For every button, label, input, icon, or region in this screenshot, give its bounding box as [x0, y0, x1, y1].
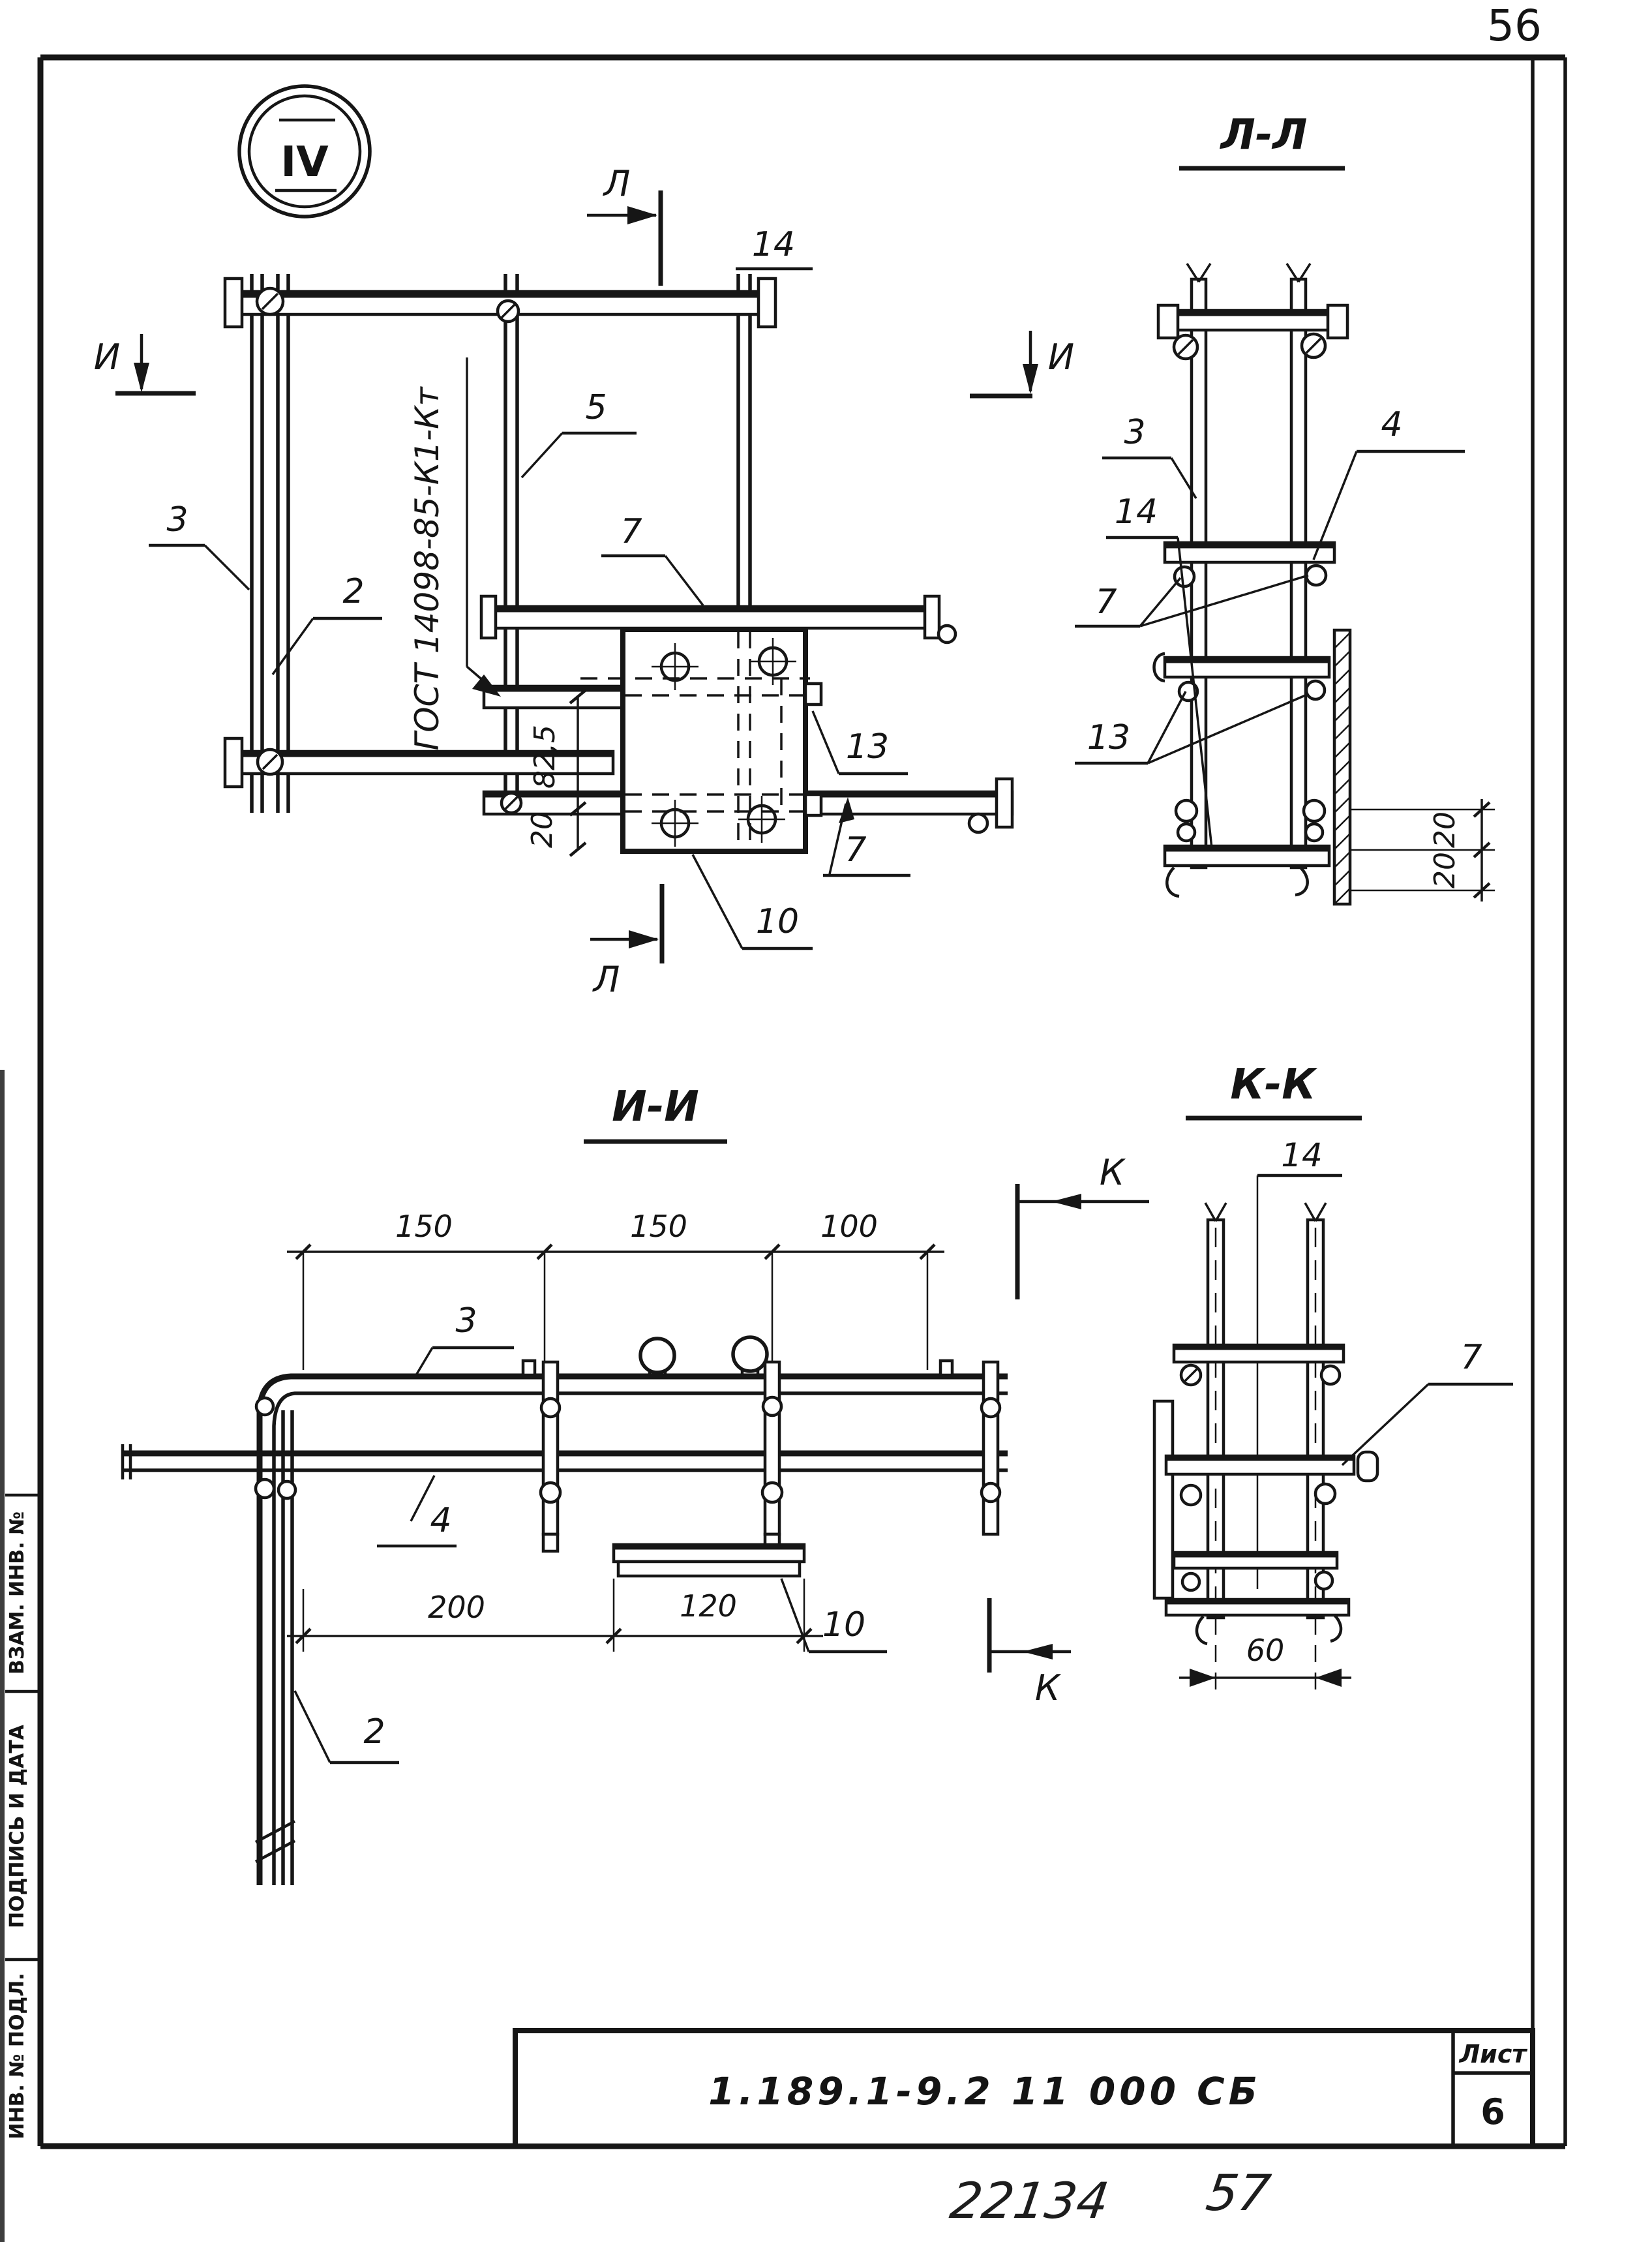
- section-cut-i-left: И: [94, 334, 196, 393]
- dim-150-mid: 150: [630, 1209, 687, 1244]
- title-block: 1.189.1-9.2 11 000 СБ Лист 6: [515, 2031, 1533, 2146]
- section-ll-view: Л-Л: [1075, 111, 1495, 904]
- dim-60: 60: [1246, 1633, 1285, 1668]
- label-2: 2: [342, 572, 364, 611]
- cut-letter: И: [1048, 337, 1074, 378]
- page-number: 56: [1487, 1, 1542, 51]
- cut-letter: И: [94, 337, 120, 378]
- gost-note: ГОСТ 14098-85-К1-Кт: [408, 386, 446, 750]
- label-7: 7: [1095, 583, 1117, 622]
- section-cut-i-right: И: [970, 331, 1074, 396]
- sheet-frame: [0, 57, 1565, 2242]
- handwritten-left: 22134: [946, 2172, 1112, 2230]
- drawing-sheet: 56 22134 57 IV ВЗАМ. ИНВ. № ПОДПИСЬ И ДА…: [0, 0, 1652, 2242]
- section-ll-dimensions: 20 20: [1349, 799, 1495, 901]
- dim-120: 120: [680, 1588, 737, 1624]
- label-2: 2: [363, 1712, 385, 1751]
- label-10: 10: [822, 1605, 865, 1644]
- section-kk-view: К-К 14: [1154, 1061, 1513, 1696]
- dim-150-left: 150: [395, 1209, 453, 1244]
- section-ll-labels: 3 4 14 7 13: [1075, 405, 1465, 848]
- title-block-designation: 1.189.1-9.2 11 000 СБ: [708, 2069, 1261, 2113]
- label-3: 3: [1124, 413, 1145, 452]
- handwritten-numbers: 22134 57: [946, 2164, 1274, 2230]
- label-7-top: 7: [620, 512, 642, 551]
- dim-20: 20: [526, 811, 559, 848]
- label-4: 4: [430, 1501, 451, 1540]
- section-ii-bottom-dims: 200 120: [287, 1579, 823, 1652]
- title-block-sheet-number: 6: [1480, 2091, 1505, 2132]
- label-14: 14: [1281, 1136, 1323, 1174]
- section-ii-top-dims: 150 150 100: [287, 1209, 944, 1370]
- hatched-plate: [1334, 630, 1350, 904]
- section-kk-title: К-К: [1230, 1061, 1317, 1109]
- cut-letter: Л: [592, 959, 620, 1000]
- label-13: 13: [1087, 718, 1130, 757]
- detail-circle-label: IV: [280, 138, 329, 187]
- drawing-canvas: 56 22134 57 IV ВЗАМ. ИНВ. № ПОДПИСЬ И ДА…: [0, 0, 1652, 2242]
- detail-circle-iv: IV: [239, 86, 370, 217]
- title-block-sheet-label: Лист: [1459, 2040, 1528, 2068]
- section-cut-l-bottom: Л: [590, 884, 662, 1000]
- section-ii-view: И-И 150 150 100: [123, 1083, 1149, 1885]
- margin-strip: ВЗАМ. ИНВ. № ПОДПИСЬ И ДАТА ИНВ. № ПОДЛ.: [5, 1495, 40, 2140]
- label-7-bottom: 7: [845, 830, 866, 870]
- section-cut-l-top: Л: [587, 163, 661, 286]
- section-cut-k-top: К: [1017, 1152, 1149, 1299]
- label-14: 14: [752, 225, 795, 264]
- label-7: 7: [1460, 1338, 1482, 1377]
- label-4: 4: [1381, 405, 1402, 444]
- cut-letter: К: [1100, 1152, 1126, 1193]
- dim-100: 100: [820, 1209, 878, 1244]
- dim-82-5: 82,5: [528, 725, 562, 789]
- margin-label-podpis: ПОДПИСЬ И ДАТА: [6, 1724, 29, 1928]
- plan-view: Л Л И И ГОСТ 14098-85-К1-Кт: [94, 163, 1074, 1000]
- section-ii-title: И-И: [612, 1083, 699, 1131]
- section-kk-dimension: 60: [1179, 1618, 1351, 1696]
- cut-letter: К: [1035, 1667, 1062, 1708]
- label-3: 3: [455, 1301, 477, 1341]
- label-3: 3: [166, 500, 188, 539]
- margin-label-vzam: ВЗАМ. ИНВ. №: [6, 1511, 29, 1674]
- cut-letter: Л: [603, 163, 631, 204]
- scan-edge-artifact: [0, 1070, 5, 2242]
- label-14: 14: [1115, 492, 1158, 532]
- section-ii-labels: 3 4 10 2: [295, 1301, 887, 1763]
- label-10: 10: [756, 902, 799, 941]
- dim-20-upper: 20: [1428, 811, 1462, 848]
- label-13: 13: [846, 727, 889, 766]
- dim-200: 200: [428, 1590, 485, 1625]
- dim-20-lower: 20: [1428, 852, 1462, 888]
- label-5: 5: [585, 388, 607, 427]
- section-cut-k-bottom: К: [989, 1598, 1071, 1708]
- handwritten-right: 57: [1203, 2164, 1274, 2222]
- section-ll-title: Л-Л: [1220, 111, 1308, 159]
- margin-label-inv: ИНВ. № ПОДЛ.: [6, 1973, 29, 2139]
